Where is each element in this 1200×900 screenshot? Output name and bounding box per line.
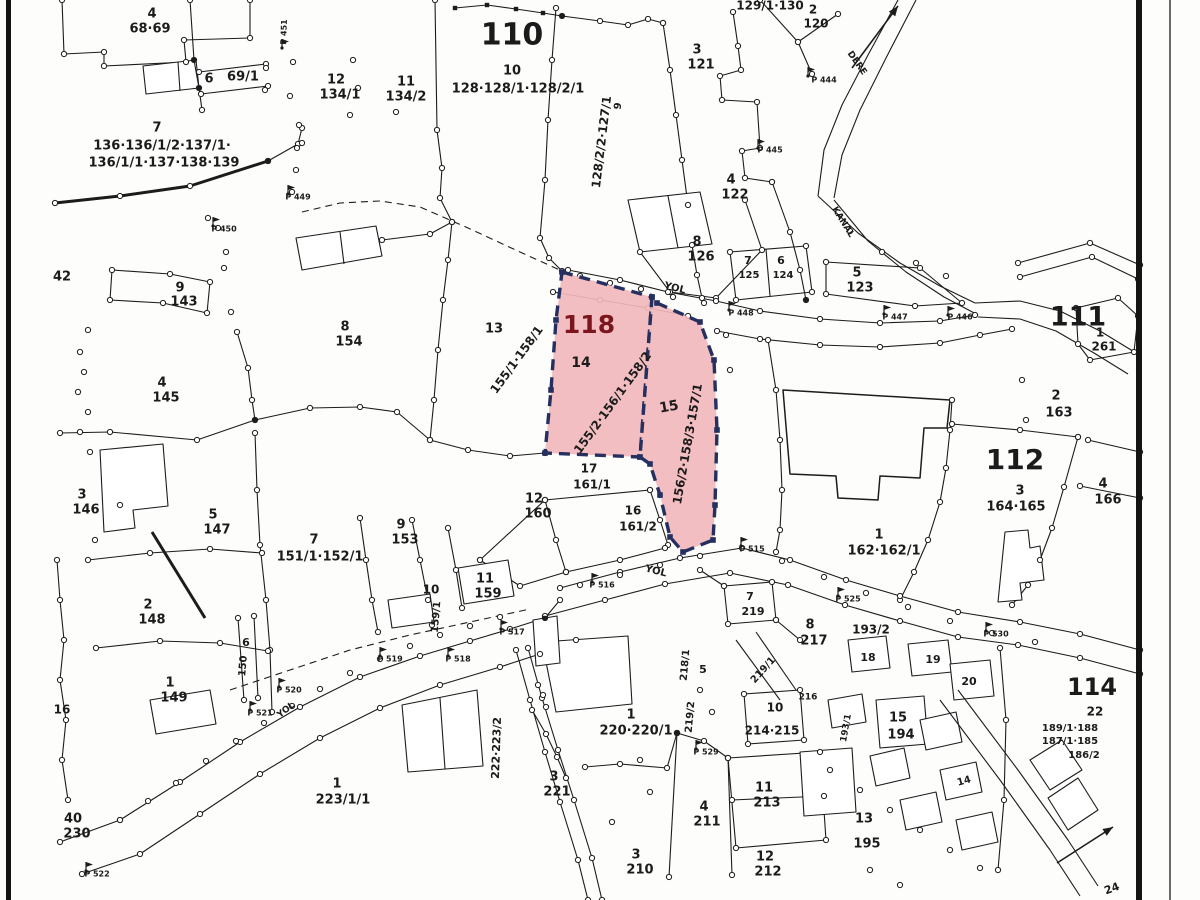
parcel-label: 216: [799, 693, 818, 703]
solid-survey-mark: [253, 418, 257, 422]
vertex-dot: [299, 140, 304, 145]
parcel-label: 189/1·188: [1042, 723, 1098, 734]
vertex-dot: [577, 582, 582, 587]
parcel-label: 9: [175, 281, 184, 296]
map-frame-border: [1136, 0, 1142, 900]
vertex-dot: [265, 648, 270, 653]
parcel-label: 10: [503, 64, 521, 79]
vertex-dot: [699, 295, 704, 300]
highlighted-parcel-corner: [714, 427, 720, 433]
vertex-dot: [730, 9, 735, 14]
parcel-label: 162·162/1: [847, 544, 920, 559]
vertex-dot: [645, 16, 650, 21]
vertex-dot: [247, 0, 252, 3]
vertex-dot: [1025, 582, 1030, 587]
vertex-dot: [198, 91, 203, 96]
survey-point-label: P 445: [757, 146, 783, 155]
parcel-label: 12: [756, 850, 774, 865]
parcel-label: 126: [687, 250, 714, 265]
parcel-label: 15: [658, 397, 680, 416]
vertex-dot: [887, 807, 892, 812]
vertex-dot: [59, 0, 64, 3]
vertex-dot: [255, 695, 260, 700]
vertex-dot: [477, 557, 482, 562]
survey-point-label: P 448: [728, 309, 754, 318]
vertex-dot: [912, 303, 917, 308]
vertex-dot: [719, 97, 724, 102]
vertex-dot: [187, 183, 192, 188]
vertex-dot: [57, 839, 62, 844]
parcel-label: 134/1: [320, 88, 361, 103]
parcel-label: 18: [860, 651, 875, 664]
parcel-label: 20: [961, 675, 977, 688]
solid-survey-mark: [804, 298, 808, 302]
vertex-dot: [738, 67, 743, 72]
vertex-dot: [317, 735, 322, 740]
vertex-dot: [409, 517, 414, 522]
vertex-dot: [61, 637, 66, 642]
parcel-label: 4: [699, 800, 708, 815]
parcel-label: 159: [474, 587, 501, 602]
vertex-dot: [357, 404, 362, 409]
vertex-dot: [1049, 525, 1054, 530]
vertex-dot: [107, 297, 112, 302]
vertex-dot: [769, 579, 774, 584]
parcel-label: 14: [571, 355, 591, 371]
vertex-dot: [93, 645, 98, 650]
vertex-dot: [1015, 260, 1020, 265]
vertex-dot: [947, 847, 952, 852]
vertex-dot: [997, 645, 1002, 650]
highlighted-parcel-corner: [680, 549, 686, 555]
vertex-dot: [741, 691, 746, 696]
vertex-dot: [697, 687, 702, 692]
vertex-dot: [777, 437, 782, 442]
parcel-label: 19: [925, 653, 940, 666]
vertex-dot: [525, 645, 530, 650]
vertex-dot: [947, 427, 952, 432]
vertex-dot: [157, 638, 162, 643]
solid-survey-mark: [192, 58, 196, 62]
vertex-dot: [249, 397, 254, 402]
vertex-dot: [81, 369, 86, 374]
vertex-dot: [347, 670, 352, 675]
vertex-dot: [670, 294, 675, 299]
vertex-dot: [437, 195, 442, 200]
vertex-dot: [817, 316, 822, 321]
vertex-dot: [1115, 295, 1120, 300]
vertex-dot: [735, 43, 740, 48]
vertex-dot: [543, 731, 548, 736]
vertex-dot: [713, 298, 718, 303]
vertex-dot: [223, 249, 228, 254]
vertex-dot: [434, 127, 439, 132]
vertex-dot: [317, 686, 322, 691]
parcel-label: 151/1·152/1: [277, 550, 364, 565]
highlighted-parcel-corner: [637, 454, 643, 460]
vertex-dot: [666, 874, 671, 879]
parcel-label: 11: [476, 572, 494, 587]
vertex-dot: [394, 409, 399, 414]
vertex-dot: [697, 567, 702, 572]
vertex-dot: [697, 553, 702, 558]
parcel-label: 211: [693, 815, 720, 830]
parcel-label: 187/1·185: [1042, 736, 1098, 747]
vertex-dot: [779, 487, 784, 492]
vertex-dot: [377, 705, 382, 710]
vertex-dot: [637, 757, 642, 762]
parcel-label: 13: [855, 812, 873, 827]
vertex-dot: [797, 267, 802, 272]
vertex-dot: [101, 49, 106, 54]
vertex-dot: [173, 780, 178, 785]
parcel-label: 149: [160, 691, 187, 706]
parcel-label: 136/1/1·137·138·139: [89, 156, 240, 171]
vertex-dot: [667, 67, 672, 72]
vertex-dot: [823, 837, 828, 842]
vertex-dot: [757, 308, 762, 313]
vertex-dot: [617, 761, 622, 766]
parcel-label: 6: [777, 254, 785, 267]
parcel-label: 261: [1091, 340, 1116, 354]
parcel-label: 5: [852, 266, 861, 281]
vertex-dot: [542, 177, 547, 182]
parcel-label: 219: [742, 605, 765, 618]
highlighted-parcel-corner: [559, 269, 565, 275]
parcel-label: 10: [767, 701, 784, 715]
vertex-dot: [943, 273, 948, 278]
vertex-dot: [435, 347, 440, 352]
parcel-label: 124: [773, 270, 794, 281]
vertex-dot: [1017, 427, 1022, 432]
vertex-dot: [117, 193, 122, 198]
vertex-dot: [787, 557, 792, 562]
parcel-label: 154: [335, 335, 362, 350]
parcel-label: 3: [549, 770, 558, 785]
vertex-dot: [817, 749, 822, 754]
survey-point-label: P 520: [276, 686, 302, 695]
parcel-label: 17: [581, 462, 598, 476]
vertex-dot: [660, 20, 665, 25]
vertex-dot: [197, 811, 202, 816]
vertex-dot: [221, 265, 226, 270]
parcel-label: 2: [143, 598, 152, 613]
vertex-dot: [513, 647, 518, 652]
survey-point-label: P 517: [499, 628, 524, 637]
parcel-label: 12: [327, 73, 345, 88]
vertex-dot: [251, 613, 256, 618]
vertex-dot: [263, 597, 268, 602]
parcel-label: 1: [626, 708, 635, 723]
highlighted-parcel-corner: [657, 492, 663, 498]
parcel-label: 4: [726, 173, 735, 188]
vertex-dot: [1087, 357, 1092, 362]
vertex-dot: [617, 572, 622, 577]
vertex-dot: [147, 550, 152, 555]
vertex-dot: [540, 692, 545, 697]
parcel-label: 3: [692, 43, 701, 58]
vertex-dot: [1003, 717, 1008, 722]
vertex-dot: [537, 235, 542, 240]
solid-survey-mark: [453, 6, 457, 10]
parcel-label: 1: [332, 777, 341, 792]
parcel-label: 125: [739, 270, 760, 281]
vertex-dot: [257, 771, 262, 776]
vertex-dot: [773, 617, 778, 622]
vertex-dot: [729, 872, 734, 877]
parcel-label: 5: [699, 663, 707, 676]
parcel-label: 150: [237, 655, 250, 677]
vertex-dot: [393, 109, 398, 114]
parcel-label: 2: [1051, 389, 1060, 404]
parcel-label: 163: [1045, 406, 1072, 421]
vertex-dot: [795, 39, 800, 44]
vertex-dot: [107, 429, 112, 434]
vertex-dot: [379, 237, 384, 242]
parcel-label: 4: [1098, 477, 1107, 492]
vertex-dot: [445, 525, 450, 530]
vertex-dot: [647, 487, 652, 492]
vertex-dot: [1009, 602, 1014, 607]
vertex-dot: [759, 247, 764, 252]
vertex-dot: [607, 280, 612, 285]
vertex-dot: [557, 799, 562, 804]
vertex-dot: [877, 344, 882, 349]
parcel-label: 164·165: [986, 500, 1045, 515]
survey-point-label: P 522: [84, 870, 109, 879]
vertex-dot: [1015, 642, 1020, 647]
vertex-dot: [573, 637, 578, 642]
parcel-label: 15: [889, 711, 907, 726]
vertex-dot: [911, 569, 916, 574]
parcel-label: 7: [152, 121, 161, 136]
vertex-dot: [543, 704, 548, 709]
vertex-dot: [709, 709, 714, 714]
vertex-dot: [754, 99, 759, 104]
solid-survey-mark: [266, 159, 270, 163]
vertex-dot: [657, 517, 662, 522]
parcel-label: 1: [1096, 326, 1104, 340]
vertex-dot: [897, 618, 902, 623]
vertex-dot: [1037, 557, 1042, 562]
parcel-label: 122: [721, 188, 748, 203]
vertex-dot: [742, 175, 747, 180]
vertex-dot: [263, 65, 268, 70]
vertex-dot: [809, 289, 814, 294]
vertex-dot: [801, 737, 806, 742]
highlighted-parcel-corner: [667, 534, 673, 540]
highlighted-parcel-corner: [553, 317, 559, 323]
vertex-dot: [765, 337, 770, 342]
map-frame-border: [6, 0, 11, 900]
parcel-label: 3: [77, 488, 86, 503]
vertex-dot: [739, 148, 744, 153]
vertex-dot: [467, 623, 472, 628]
vertex-dot: [254, 487, 259, 492]
parcel-label: 6: [204, 72, 213, 87]
vertex-dot: [54, 557, 59, 562]
parcel-label: 8: [805, 618, 814, 633]
vertex-dot: [207, 546, 212, 551]
vertex-dot: [1019, 377, 1024, 382]
parcel-label: 129/1·130: [736, 0, 803, 13]
solid-survey-mark: [675, 731, 679, 735]
survey-point-label: P 451: [279, 19, 289, 45]
vertex-dot: [87, 449, 92, 454]
vertex-dot: [803, 243, 808, 248]
vertex-dot: [542, 497, 547, 502]
highlighted-parcel-corner: [654, 300, 660, 306]
vertex-dot: [85, 409, 90, 414]
vertex-dot: [205, 215, 210, 220]
vertex-dot: [350, 57, 355, 62]
block-label: 112: [986, 443, 1044, 476]
parcel-label: 13: [485, 322, 503, 337]
vertex-dot: [625, 22, 630, 27]
block-label: 114: [1067, 673, 1117, 701]
vertex-dot: [725, 621, 730, 626]
vertex-dot: [817, 342, 822, 347]
solid-survey-mark: [541, 11, 545, 15]
vertex-dot: [857, 787, 862, 792]
vertex-dot: [717, 73, 722, 78]
vertex-dot: [943, 465, 948, 470]
vertex-dot: [453, 567, 458, 572]
vertex-dot: [773, 387, 778, 392]
vertex-dot: [949, 421, 954, 426]
parcel-label: 9: [396, 518, 405, 533]
vertex-dot: [52, 200, 57, 205]
vertex-dot: [972, 312, 977, 317]
survey-point-label: P 444: [811, 76, 837, 85]
vertex-dot: [245, 365, 250, 370]
cadastral-map-canvas: 468·69669/112134/111134/27136·136/1/2·13…: [0, 0, 1200, 900]
parcel-label: 8: [692, 235, 701, 250]
survey-point-label: P 516: [589, 581, 615, 590]
vertex-dot: [467, 638, 472, 643]
vertex-dot: [729, 797, 734, 802]
vertex-dot: [357, 674, 362, 679]
parcel-label: 160: [524, 507, 551, 522]
parcel-label: 217: [800, 634, 827, 649]
parcel-label: 11: [755, 781, 773, 796]
vertex-dot: [937, 499, 942, 504]
vertex-dot: [537, 651, 542, 656]
vertex-dot: [439, 165, 444, 170]
vertex-dot: [905, 604, 910, 609]
parcel-label: 221: [543, 785, 570, 800]
vertex-dot: [59, 757, 64, 762]
vertex-dot: [575, 857, 580, 862]
parcel-label: 146: [72, 503, 99, 518]
parcel-label: 153: [391, 533, 418, 548]
vertex-dot: [431, 397, 436, 402]
block-label: 118: [563, 310, 615, 339]
vertex-dot: [85, 327, 90, 332]
vertex-dot: [257, 542, 262, 547]
parcel-label: 213: [753, 796, 780, 811]
vertex-dot: [1089, 254, 1094, 259]
vertex-dot: [977, 865, 982, 870]
parcel-label: 147: [203, 523, 230, 538]
vertex-dot: [937, 318, 942, 323]
vertex-dot: [57, 677, 62, 682]
parcel-label: 193/2: [852, 623, 890, 637]
vertex-dot: [1023, 417, 1028, 422]
vertex-dot: [92, 537, 97, 542]
vertex-dot: [203, 758, 208, 763]
vertex-dot: [947, 618, 952, 623]
parcel-label: 5: [208, 508, 217, 523]
vertex-dot: [647, 789, 652, 794]
vertex-dot: [261, 720, 266, 725]
survey-point-label: P 521: [247, 709, 273, 718]
vertex-dot: [977, 332, 982, 337]
vertex-dot: [721, 583, 726, 588]
vertex-dot: [685, 202, 690, 207]
highlighted-parcel-corner: [697, 319, 703, 325]
vertex-dot: [529, 707, 534, 712]
solid-survey-mark: [197, 86, 201, 90]
vertex-dot: [375, 629, 380, 634]
vertex-dot: [733, 845, 738, 850]
survey-point-label: P 519: [377, 655, 403, 664]
vertex-dot: [535, 682, 540, 687]
parcel-label: 222·223/2: [489, 717, 504, 779]
parcel-label: 4: [147, 7, 156, 22]
vertex-dot: [357, 515, 362, 520]
solid-survey-mark: [543, 616, 547, 620]
vertex-dot: [63, 717, 68, 722]
vertex-dot: [843, 577, 848, 582]
vertex-dot: [785, 582, 790, 587]
vertex-dot: [1075, 434, 1080, 439]
vertex-dot: [294, 145, 299, 150]
vertex-dot: [145, 798, 150, 803]
parcel-label: 148: [138, 613, 165, 628]
vertex-dot: [673, 112, 678, 117]
vertex-dot: [617, 277, 622, 282]
survey-point-label: P 446: [947, 313, 973, 322]
vertex-dot: [449, 219, 454, 224]
vertex-dot: [207, 279, 212, 284]
vertex-dot: [194, 437, 199, 442]
highlighted-parcel-corner: [710, 537, 716, 543]
vertex-dot: [571, 797, 576, 802]
vertex-dot: [727, 249, 732, 254]
vertex-dot: [465, 447, 470, 452]
survey-point-label: P 515: [739, 545, 765, 554]
vertex-dot: [553, 5, 558, 10]
parcel-label: 7: [746, 590, 754, 603]
vertex-dot: [204, 310, 209, 315]
vertex-dot: [827, 767, 832, 772]
map-page: 468·69669/112134/111134/27136·136/1/2·13…: [0, 0, 1200, 900]
vertex-dot: [662, 581, 667, 586]
vertex-dot: [662, 545, 667, 550]
vertex-dot: [777, 527, 782, 532]
vertex-dot: [247, 35, 252, 40]
survey-point-label: P 447: [882, 313, 907, 322]
vertex-dot: [913, 260, 918, 265]
vertex-dot: [117, 502, 122, 507]
vertex-dot: [77, 429, 82, 434]
vertex-dot: [234, 329, 239, 334]
vertex-dot: [897, 882, 902, 887]
vertex-dot: [955, 609, 960, 614]
vertex-dot: [417, 557, 422, 562]
vertex-dot: [546, 255, 551, 260]
